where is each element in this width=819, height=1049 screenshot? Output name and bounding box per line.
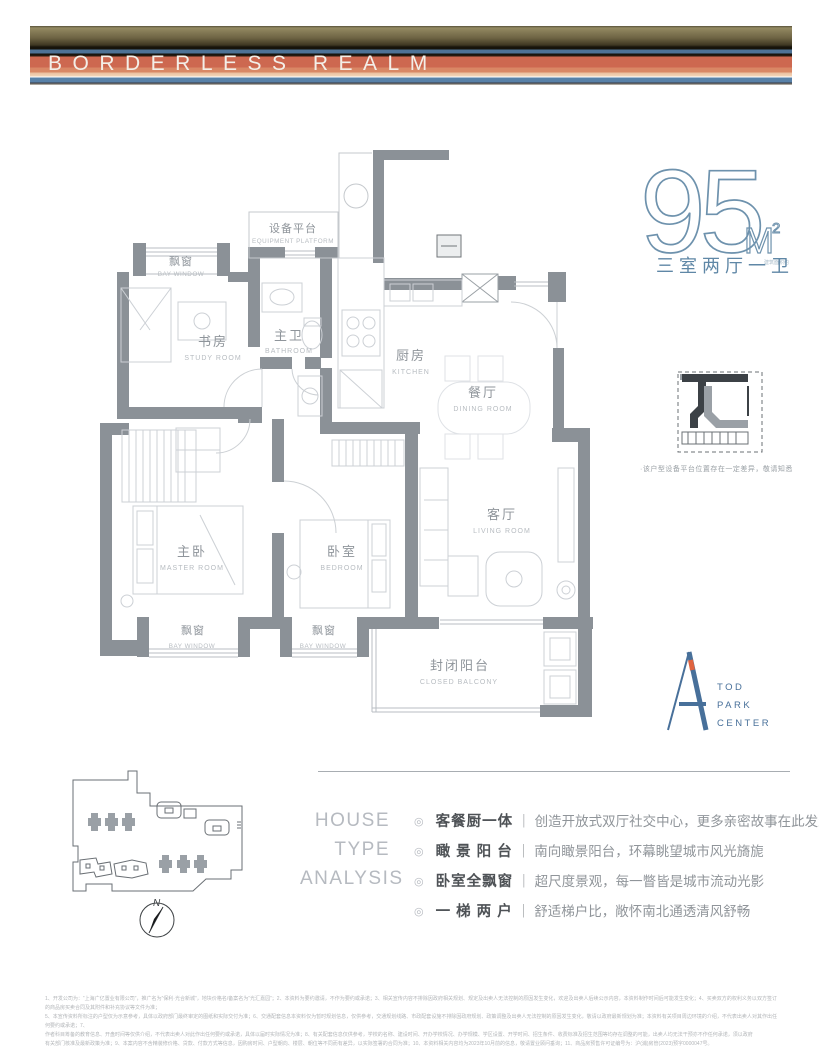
analysis-item-desc: 舒适梯户比，敞怀南北通透清风舒畅: [534, 904, 750, 919]
analysis-item: ◎一 梯 两 户｜舒适梯户比，敞怀南北通透清风舒畅: [414, 900, 750, 921]
disclaimer-line: 有关部门核准及最新政策为准；9、本案内容不含精装修价格、贷款、付款方式等信息，因…: [45, 1040, 777, 1049]
analysis-title-1: HOUSE: [300, 810, 390, 832]
equipment-label-en: EQUIPMENT PLATFORM: [252, 238, 334, 245]
bedroom-label-en: BEDROOM: [320, 565, 363, 572]
bedroom-label-cn: 卧室: [327, 544, 357, 559]
analysis-item: ◎卧室全飘窗｜超尺度景观，每一瞥皆是城市流动光影: [414, 870, 764, 891]
analysis-item-title: 瞰 景 阳 台: [436, 844, 513, 860]
analysis-item-title: 客餐厨一体: [436, 814, 514, 830]
analysis-item-title: 一 梯 两 户: [436, 904, 513, 920]
balcony-label-cn: 封闭阳台: [430, 658, 490, 673]
logo-line3: CENTER: [717, 718, 771, 729]
analysis-item-title: 卧室全飘窗: [436, 874, 514, 890]
analysis-title-2: TYPE: [300, 839, 390, 861]
analysis-item: ◎瞰 景 阳 台｜南向瞰景阳台，环幕眺望城市风光旖旎: [414, 840, 764, 861]
door-arcs: [216, 302, 557, 533]
study-label-cn: 书房: [198, 334, 228, 349]
disclaimer-line: 5、本宣传资料所标注的户型仅为示意参考，具体以政府部门最终审定的图纸和实际交付为…: [45, 1013, 777, 1031]
area-unit-sup: 2: [772, 220, 780, 237]
analysis-title-3: ANALYSIS: [300, 868, 390, 890]
disclaimer-line: 1、开发公司为：“上海广亿置业有限公司”，推广名为“保利·光合新城”，地块价格名…: [45, 995, 777, 1013]
bay-top-label-cn: 飘窗: [169, 254, 193, 268]
north-compass: N: [140, 898, 174, 937]
brand-banner: BORDERLESS REALM: [30, 26, 792, 85]
site-plan: N: [60, 755, 305, 980]
analysis-item-desc: 超尺度景观，每一瞥皆是城市流动光影: [535, 874, 765, 889]
kitchen-label-en: KITCHEN: [392, 369, 430, 376]
logo-orange-accent: [691, 660, 693, 670]
platform-detail-diagram: [668, 366, 778, 462]
compass-label: N: [153, 898, 161, 909]
study-label-en: STUDY ROOM: [184, 355, 241, 362]
analysis-item: ◎客餐厨一体｜创造开放式双厅社交中心，更多亲密故事在此发生: [414, 810, 819, 831]
bullet-icon: ◎: [414, 906, 424, 918]
platform-detail-note: ·该户型设备平台位置存在一定差异，敬请知悉: [640, 464, 819, 474]
separator: ｜: [517, 844, 531, 859]
separator: ｜: [517, 874, 531, 889]
equipment-label-cn: 设备平台: [269, 221, 317, 235]
kitchen-label-cn: 厨房: [396, 348, 426, 363]
bay-top-label-en: BAY WINDOW: [158, 271, 204, 278]
dining-label-en: DINING ROOM: [453, 406, 512, 413]
master-label-en: MASTER ROOM: [160, 565, 224, 572]
logo-line2: PARK: [717, 700, 752, 711]
furniture: [121, 258, 576, 704]
room-labels: 设备平台 EQUIPMENT PLATFORM 飘窗 BAY WINDOW 书房…: [158, 221, 531, 686]
bullet-icon: ◎: [414, 846, 424, 858]
floor-plan: 设备平台 EQUIPMENT PLATFORM 飘窗 BAY WINDOW 书房…: [85, 140, 630, 752]
separator: ｜: [517, 904, 531, 919]
layout-text: 三室两厅一卫: [645, 252, 805, 278]
bathroom-label-en: BATHROOM: [265, 348, 313, 355]
legal-disclaimer: 1、开发公司为：“上海广亿置业有限公司”，推广名为“保利·光合新城”，地块价格名…: [45, 995, 777, 1049]
living-label-cn: 客厅: [487, 507, 517, 522]
master-label-cn: 主卧: [177, 544, 207, 559]
bathroom-label-cn: 主卫: [274, 328, 304, 343]
bullet-icon: ◎: [414, 816, 424, 828]
bay-left-label-cn: 飘窗: [181, 623, 205, 637]
walls: [100, 150, 593, 717]
brand-logo: TOD PARK CENTER: [655, 638, 805, 740]
disclaimer-line: 作者科目筹备的教育信息、开盘时间等仅供介绍，不代表出卖人对此作出任何要约或承诺，…: [45, 1031, 777, 1040]
balcony-label-en: CLOSED BALCONY: [420, 679, 498, 686]
bay-mid-label-cn: 飘窗: [312, 623, 336, 637]
analysis-divider: [318, 771, 790, 772]
bay-mid-label-en: BAY WINDOW: [300, 643, 346, 650]
building-footprints: [88, 813, 207, 873]
logo-line1: TOD: [717, 682, 744, 693]
analysis-item-desc: 南向瞰景阳台，环幕眺望城市风光旖旎: [534, 844, 764, 859]
analysis-item-desc: 创造开放式双厅社交中心，更多亲密故事在此发生: [535, 814, 819, 829]
separator: ｜: [517, 814, 531, 829]
living-label-en: LIVING ROOM: [473, 528, 531, 535]
banner-title: BORDERLESS REALM: [48, 52, 438, 76]
bullet-icon: ◎: [414, 876, 424, 888]
bay-left-label-en: BAY WINDOW: [169, 643, 215, 650]
dining-label-cn: 餐厅: [468, 385, 498, 400]
